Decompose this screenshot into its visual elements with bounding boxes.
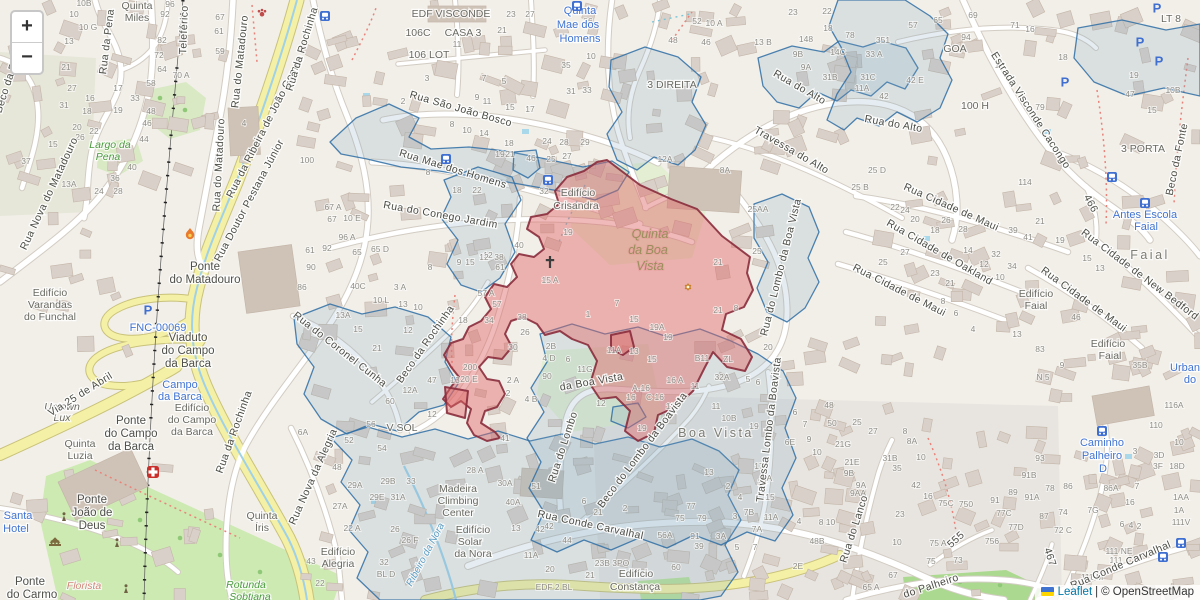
place-label: do Campo [168,414,217,426]
place-label: da Nora [454,548,492,560]
place-label: 106 LOT [409,49,450,61]
house-number-label: 24 [94,186,104,196]
house-number-label: 26 [390,524,400,534]
building [174,589,185,600]
place-label: GOA [943,43,966,55]
tree-icon [998,583,1003,588]
house-number-label: 7 [615,298,620,308]
place-label: Center [442,507,474,519]
house-number-label: 75 [926,556,936,566]
house-number-label: 2B [546,341,557,351]
place-label: Solar [458,536,483,548]
place-label: V SOL [387,422,418,434]
house-number-label: 20 [545,564,555,574]
tree-icon [158,96,163,101]
house-number-label: 3A [716,531,727,541]
house-number-label: 32 [991,249,1001,259]
house-number-label: 61 [214,26,224,36]
place-label: Deus [79,520,106,532]
house-number-label: 19A [649,322,664,332]
house-number-label: 18 [82,106,92,116]
house-number-label: 13 [629,346,639,356]
place-label: Mae dos [557,19,600,31]
house-number-label: 2 [1137,521,1142,531]
house-number-label: 14C [830,47,846,57]
building [1026,426,1047,439]
house-number-label: 30 [508,342,518,352]
house-number-label: 13 [398,299,408,309]
house-number-label: ZL [723,354,733,364]
house-number-label: 9 [1060,360,1065,370]
building [362,96,371,107]
house-number-label: 67 [327,214,337,224]
house-number-label: 20 [910,214,920,224]
house-number-label: 26 F [401,535,418,545]
place-label: Santa [4,510,34,522]
leaflet-link[interactable]: Leaflet [1058,586,1093,598]
house-number-label: 12 [596,398,606,408]
house-number-label: 40C [350,281,366,291]
house-number-label: 50 [827,418,837,428]
place-label: Ponte [190,261,220,273]
house-number-label: 13 [511,523,521,533]
house-number-label: 41 [500,433,510,443]
house-number-label: 48 [668,35,678,45]
building [1192,130,1200,144]
house-number-label: 19 [663,332,673,342]
house-number-label: 44 [139,134,149,144]
house-number-label: 110 [1149,420,1163,430]
house-number-label: 23 [788,7,798,17]
building [942,458,952,469]
house-number-label: 3D [1154,450,1165,460]
house-number-label: 90 [306,262,316,272]
building [1117,236,1130,250]
place-label: Edifício [619,568,654,580]
house-number-label: 11A [855,83,870,93]
house-number-label: 18D [1169,461,1185,471]
house-number-label: 9B [844,468,855,478]
place-label: do Funchal [24,311,76,323]
house-number-label: 28 [958,224,968,234]
house-number-label: 8 [903,426,908,436]
building [1195,333,1200,349]
building [872,230,894,248]
house-number-label: 9B [793,49,804,59]
house-number-label: 73 [953,555,963,565]
house-number-label: 35B [1132,360,1147,370]
house-number-label: 38 [517,312,527,322]
house-number-label: 6 [756,377,761,387]
house-number-label: 65 [933,15,943,25]
place-label: Madeira [439,483,477,495]
house-number-label: 17 [113,83,123,93]
house-number-label: 15 [353,324,363,334]
house-number-label: 27 [868,426,878,436]
zoom-in-button[interactable]: + [12,12,42,43]
house-number-label: 7 [753,542,758,552]
parking-icon: P [1136,35,1145,50]
house-number-label: 10B [1165,85,1180,95]
house-number-label: 72 C [1054,525,1072,535]
house-number-label: 8 [450,119,455,129]
house-number-label: 21 [61,62,71,72]
house-number-label: 750 [959,499,973,509]
house-number-label: 33 [130,93,140,103]
place-label: Faial [1130,248,1170,262]
place-label: Edifício [1091,338,1126,350]
place-label: do [1184,374,1196,386]
place-label: 106C [405,27,431,39]
house-number-label: 64 [157,64,167,74]
building [904,362,914,376]
house-number-label: 15 [629,314,639,324]
house-number-label: 46 [142,118,152,128]
house-number-label: 18 [823,23,833,33]
place-label: Edifício [321,546,356,558]
building [152,118,167,129]
house-number-label: 79 [697,513,707,523]
svg-text:P: P [1155,54,1164,69]
house-number-label: 10 [892,537,902,547]
house-number-label: 7A [752,524,763,534]
house-number-label: 13 [704,467,714,477]
house-number-label: 11A [607,345,622,355]
tree-icon [138,518,143,523]
house-number-label: 40A [505,497,520,507]
place-label: Edifício [456,524,491,536]
place-label: Faial [1025,300,1048,312]
house-number-label: 19 [113,105,123,115]
place-label: Faial [1099,350,1122,362]
building [1134,533,1144,546]
building [749,590,768,600]
house-number-label: 16 A [666,375,683,385]
house-number-label: 82 [157,35,167,45]
bus-stop-icon [1176,538,1186,548]
place-label: Quinta [247,510,278,522]
house-number-label: 83 [1035,344,1045,354]
building [927,156,937,165]
house-number-label: 21 [505,149,515,159]
house-number-label: 36 [110,173,120,183]
building [1089,474,1097,483]
place-label: do Carmo [7,589,58,600]
house-number-label: 10B [721,413,736,423]
place-label: Varandas [28,299,72,311]
house-number-label: 86 [297,282,307,292]
large-building [238,244,300,313]
house-number-label: 32A [714,372,729,382]
bus-stop-icon [1158,552,1168,562]
place-label: Quinta [122,0,153,12]
house-number-label: 28 [113,186,123,196]
place-label: 3 DIREITA [647,79,696,91]
house-number-label: 25 [852,417,862,427]
house-number-label: 4 [797,516,802,526]
house-number-label: 21 [372,343,382,353]
building [1049,388,1062,402]
house-number-label: 39 [694,541,704,551]
house-number-label: 16 [1125,497,1135,507]
tree-icon [258,570,263,575]
house-number-label: 41 [1023,232,1033,242]
bus-stop-icon [572,1,582,11]
place-label: Constança [610,581,660,593]
house-number-label: 9 [475,92,480,102]
house-number-label: 26 [941,215,951,225]
attribution-bar: Leaflet|© OpenStreetMap [1035,585,1200,600]
house-number-label: 5 [746,374,751,384]
house-number-label: 111V [1172,517,1191,527]
house-number-label: EDF 2 BL [536,582,573,592]
building [479,42,490,55]
building [1000,543,1018,551]
house-number-label: 148 [799,34,813,44]
house-number-label: 60 [671,562,681,572]
place-label: Luzia [67,450,92,462]
ukraine-flag-icon [1041,587,1054,596]
house-number-label: 75 A [929,538,946,548]
house-number-label: 25 [752,246,762,256]
place-label: 100 H [961,100,989,112]
svg-text:P: P [1061,75,1070,90]
house-number-label: 10 [586,51,596,61]
house-number-label: 29B [380,476,395,486]
house-number-label: 75 [675,513,685,523]
place-label: Alegria [322,558,355,570]
house-number-label: 3 [733,511,738,521]
place-label: CASA 3 [445,27,482,39]
house-number-label: 1AA [1173,492,1189,502]
place-label: Urban [1170,362,1200,374]
building [881,354,892,365]
house-number-label: 37 [21,156,31,166]
house-number-label: 54 [377,443,387,453]
house-number-label: 26 [520,327,530,337]
house-number-label: 31B [882,453,897,463]
house-number-label: 6 [566,354,571,364]
house-number-label: 42 [911,480,921,490]
house-number-label: 756 [985,536,999,546]
place-label: Edifício [561,187,596,199]
building [875,316,885,325]
house-number-label: 94 [961,32,971,42]
house-number-label: 11 [453,39,462,49]
house-number-label: 20 [763,342,773,352]
place-label: João de [72,507,113,519]
house-number-label: 77D [1008,522,1024,532]
house-number-label: 17 [525,104,535,114]
house-number-label: 78 [1045,483,1055,493]
house-number-label: 12 [403,325,413,335]
bus-stop-icon [320,11,330,21]
house-number-label: 11 [712,401,721,411]
house-number-label: 15 [465,257,475,267]
map-canvas[interactable]: 10B1010 G132127171633311819202226153713A… [0,0,1200,600]
house-number-label: 4 [738,492,743,502]
house-number-label: 19 [563,227,573,237]
house-number-label: 10 [69,9,79,19]
house-number-label: 1A [1174,505,1185,515]
place-label: da Boa [628,243,668,257]
zoom-out-button[interactable]: − [12,43,42,73]
house-number-label: 56 [366,419,376,429]
house-number-label: 27 [525,9,535,19]
house-number-label: 35 [561,60,571,70]
house-number-label: 67 [215,12,225,22]
house-number-label: 47 [1125,89,1135,99]
house-number-label: 31A [390,492,405,502]
pool-icon [522,129,529,134]
highlighted-polygon[interactable] [445,387,468,418]
house-number-label: 4 D [542,353,555,363]
house-number-label: 10 [413,302,423,312]
parking-icon: P [1061,75,1070,90]
bus-stop-icon [1140,198,1150,208]
house-number-label: 13 B [754,37,772,47]
building [922,418,933,432]
place-label: Pena [96,151,121,163]
building [36,158,55,170]
house-number-label: 48 [824,400,834,410]
house-number-label: 72 [154,50,164,60]
house-number-label: 8 10 [819,517,836,527]
street-name-label: Teleférico [177,5,191,54]
place-label: 3 PORTA [1121,143,1165,155]
house-number-label: 10B [76,0,91,8]
place-label: do Campo [104,428,157,440]
house-number-label: 20 [72,122,82,132]
building [1110,493,1127,508]
house-number-label: 114 [1018,177,1032,187]
house-number-label: 23B 3PO [595,558,630,568]
house-number-label: 200 [463,362,477,372]
house-number-label: 18 [452,185,462,195]
house-number-label: 2 [726,481,731,491]
house-number-label: 12 [427,409,437,419]
house-number-label: 13A [61,179,76,189]
bus-stop-icon [543,175,553,185]
house-number-label: 28 A [466,465,483,475]
svg-text:P: P [1136,35,1145,50]
house-number-label: 31 [566,86,576,96]
house-number-label: 14 [963,245,973,255]
house-number-label: 13A [335,310,350,320]
place-label: Crisandra [553,200,599,212]
house-number-label: 96 A [338,232,355,242]
house-number-label: 48B [809,536,824,546]
place-label: D [1099,463,1107,475]
building [48,212,58,225]
house-number-label: 9A [801,62,812,72]
house-number-label: 4 [971,324,976,334]
place-label: FNC-00069 [130,322,187,334]
house-number-label: 48 [146,106,156,116]
house-number-label: 46 [701,37,711,47]
osm-copyright-link[interactable]: © OpenStreetMap [1101,586,1194,598]
house-number-label: 2 [401,96,406,106]
building [773,110,789,124]
house-number-label: 19 [637,423,647,433]
house-number-label: 16 [1025,24,1035,34]
house-number-label: 86 [1063,481,1073,491]
house-number-label: 31B [822,72,837,82]
house-number-label: 18 [1058,52,1068,62]
house-number-label: 13 [64,36,74,46]
house-number-label: N 5 [1036,372,1050,382]
house-number-label: 4 [242,118,247,128]
house-number-label: 87 [1039,511,1049,521]
house-number-label: 16 [923,491,933,501]
building [77,336,94,352]
house-number-label: 11G [577,364,592,374]
building [726,17,746,27]
house-number-label: 1 [586,309,591,319]
building [205,113,215,129]
house-number-label: 35 [892,463,902,473]
house-number-label: 16 [85,93,95,103]
house-number-label: 43 [306,556,316,566]
building [1003,191,1017,208]
house-number-label: 33 [406,476,416,486]
place-label: Antes Escola [1113,209,1178,221]
house-number-label: 60 [385,396,395,406]
place-label: do Campo [161,345,214,357]
hospital-icon [147,466,159,478]
house-number-label: 9 [457,257,462,267]
house-number-label: 27 [900,247,910,257]
house-number-label: 47 [427,375,437,385]
house-number-label: 5 [502,76,507,86]
place-label: Íris [255,521,269,534]
house-number-label: 70 A [172,70,189,80]
svg-text:P: P [1153,1,1162,16]
house-number-label: 40 [514,240,524,250]
house-number-label: 10 [462,125,472,135]
house-number-label: 39 [1008,225,1018,235]
tree-icon [218,553,223,558]
house-number-label: 19 [1129,70,1139,80]
svg-text:P: P [144,303,153,318]
house-number-label: 15 A [541,275,558,285]
house-number-label: 24 [542,136,552,146]
building [348,193,369,202]
house-number-label: 56A [657,530,672,540]
house-number-label: 78 [845,30,855,40]
house-number-label: 7G [1087,505,1098,515]
house-number-label: 23 [506,9,516,19]
tree-icon [183,108,188,113]
house-number-label: 31 [59,100,69,110]
house-number-label: 15 [647,354,657,364]
house-number-label: 3 [425,73,430,83]
house-number-label: 22 [89,126,99,136]
house-number-label: 6 [793,407,798,417]
house-number-label: 33 A [865,49,882,59]
house-number-label: 12A [402,385,417,395]
house-number-label: 13 [450,375,460,385]
bus-stop-icon [1107,172,1117,182]
house-number-label: 91 [690,531,700,541]
house-number-label: 21 [497,25,507,35]
house-number-label: 21 [945,278,955,288]
house-number-label: 31C [860,72,876,82]
house-number-label: 18 [458,315,468,325]
building [177,97,185,104]
house-number-label: 92 [160,9,170,19]
building [1162,472,1182,490]
